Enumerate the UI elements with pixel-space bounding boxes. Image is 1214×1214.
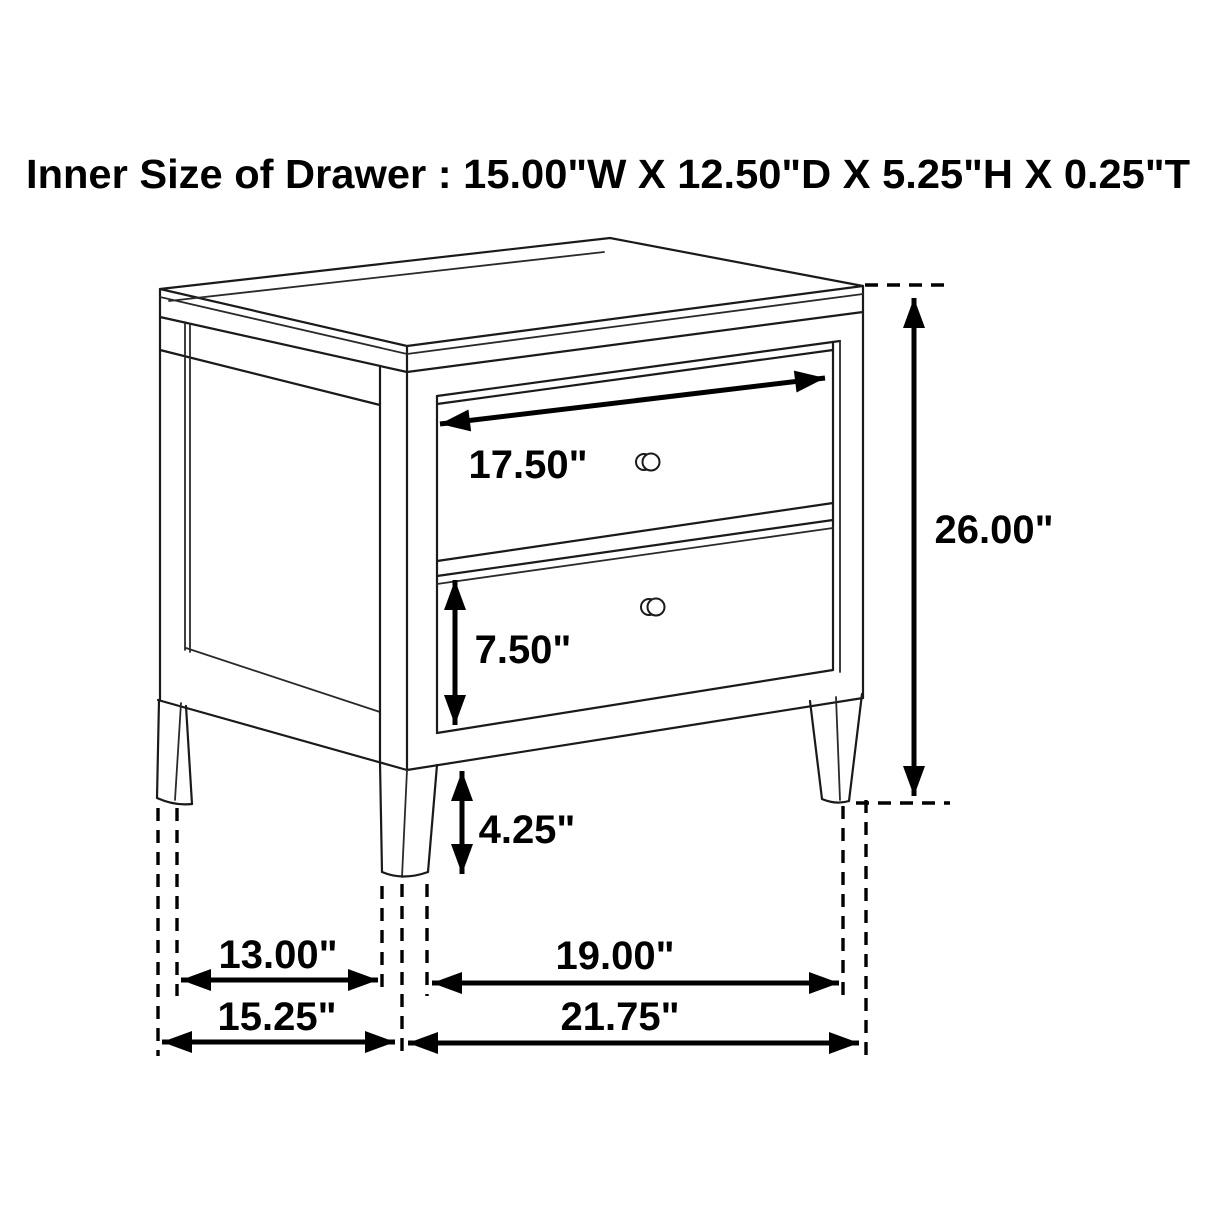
side-panel xyxy=(158,317,407,770)
drawer-1-knob xyxy=(643,454,660,471)
dim-label-drawer-opening-height: 7.50" xyxy=(475,628,572,672)
dim-arrow-drawer-width xyxy=(440,378,825,424)
dim-label-side-between-legs: 13.00" xyxy=(218,933,337,977)
front-right-leg xyxy=(810,694,862,803)
dim-label-front-between-legs: 19.00" xyxy=(555,934,674,978)
dimension-diagram-page: Inner Size of Drawer : 15.00"W X 12.50"D… xyxy=(0,0,1214,1214)
rear-left-leg xyxy=(157,700,192,804)
drawer-2-knob xyxy=(648,599,665,616)
front-left-leg xyxy=(380,763,437,877)
dim-label-leg-height: 4.25" xyxy=(479,808,576,852)
nightstand-dimension-diagram: Inner Size of Drawer : 15.00"W X 12.50"D… xyxy=(0,0,1214,1214)
dim-label-overall-height: 26.00" xyxy=(934,508,1053,552)
dim-label-drawer-width: 17.50" xyxy=(468,443,587,487)
dim-label-front-overall: 21.75" xyxy=(560,995,679,1039)
page-title: Inner Size of Drawer : 15.00"W X 12.50"D… xyxy=(26,151,1190,197)
dim-label-side-overall: 15.25" xyxy=(217,995,336,1039)
nightstand-drawing xyxy=(157,238,863,877)
